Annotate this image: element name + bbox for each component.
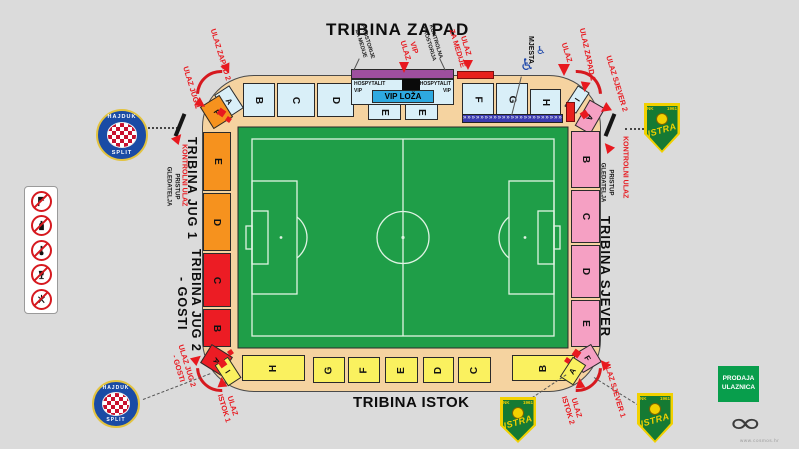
section-west-f: F — [462, 83, 494, 115]
watermark-url: www.cosmos.hr — [740, 438, 779, 443]
ticket-office-box: PRODAJA ULAZNICA — [718, 366, 759, 402]
title-tribina-sjever: TRIBINA SJEVER — [598, 216, 613, 337]
istra-year-label: 1961 — [523, 400, 533, 405]
connector-istra-top — [625, 128, 644, 130]
entrance-arrow-wheelchair — [558, 64, 570, 76]
hajduk-split-crest: HAJDUK SPLIT — [96, 109, 148, 161]
section-west-b: B — [243, 83, 275, 117]
section-east-e: E — [385, 357, 418, 383]
section-south-d: D — [203, 193, 231, 251]
section-south-e: E — [203, 132, 231, 191]
section-west-d: D — [317, 83, 354, 117]
section-west-h: H — [530, 89, 561, 116]
wheelchair-places-strip: »»»»»»»»»»»»»»»»»»»»»»» — [462, 114, 563, 123]
wheelchair-icon: ♿ — [520, 55, 534, 74]
infinity-logo: ∞ — [728, 408, 763, 439]
wheelchair-icon: ♿ — [536, 44, 546, 57]
title-tribina-istok: TRIBINA ISTOK — [353, 394, 470, 411]
label-kontrolni-ulaz-right: KONTROLNI ULAZ — [620, 136, 628, 198]
hajduk-name: HAJDUK — [103, 385, 130, 391]
label-pristup-gledatelja-left: PRISTUP GLEDATELJA — [164, 167, 179, 207]
prohibited-items-panel — [24, 186, 58, 314]
hajduk-city: SPLIT — [112, 150, 133, 156]
section-south-c: C — [203, 253, 231, 307]
hajduk-city: SPLIT — [106, 417, 125, 423]
istra-year-label: 1961 — [660, 396, 670, 401]
section-east-c: C — [458, 357, 491, 383]
hajduk-split-crest: HAJDUK SPLIT — [92, 380, 140, 428]
section-west-e1: E — [368, 104, 401, 120]
section-north-d: D — [571, 245, 600, 298]
entrance-arrow-istok2 — [575, 378, 586, 389]
istra-nk-label: NK — [647, 106, 654, 111]
section-west-e2: E — [405, 104, 438, 120]
stadium-seating-map: TRIBINA ZAPAD A B C D HOSPYTALIT VIP HOS… — [0, 0, 799, 449]
northeast-red-block — [566, 102, 575, 122]
section-east-d: D — [423, 357, 454, 383]
label-pristup-gledatelja-right: PRISTUP GLEDATELJA — [598, 163, 613, 203]
section-north-e: E — [571, 300, 600, 347]
section-north-b: B — [571, 131, 600, 188]
section-north-c: C — [571, 190, 600, 243]
hajduk-name: HAJDUK — [108, 114, 137, 120]
no-flares-icon — [31, 240, 52, 261]
no-flags-icon — [31, 191, 52, 212]
section-east-h: H — [242, 355, 305, 381]
section-east-f: F — [348, 357, 380, 383]
section-east-g: G — [313, 357, 345, 383]
no-bottles-icon — [31, 215, 52, 236]
entrance-arrow-medije — [463, 60, 473, 70]
istra-nk-label: NK — [640, 396, 647, 401]
entrance-arrow-vip — [399, 62, 409, 73]
no-alcohol-icon — [31, 264, 52, 285]
no-fireworks-icon — [31, 289, 52, 310]
istra-year-label: 1961 — [667, 106, 677, 111]
hajduk-checkerboard — [107, 122, 138, 148]
entrance-arrow-istok1 — [217, 377, 228, 388]
vip-loza-box: VIP LOŽA — [372, 90, 434, 103]
connector-hajduk-top — [148, 127, 178, 129]
section-west-c: C — [277, 83, 315, 117]
hajduk-checkerboard — [102, 392, 130, 415]
entrance-arrow-zapad1 — [579, 81, 590, 92]
title-tribina-jug2: TRIBINA JUG 2 — [189, 249, 203, 352]
media-entrance-bar — [457, 71, 494, 79]
title-jug2-gosti: - GOSTI — [175, 277, 189, 331]
label-kontrolni-ulaz-left: KONTROLNI ULAZ — [179, 144, 187, 206]
istra-nk-label: NK — [503, 400, 510, 405]
section-south-b: B — [203, 309, 231, 347]
